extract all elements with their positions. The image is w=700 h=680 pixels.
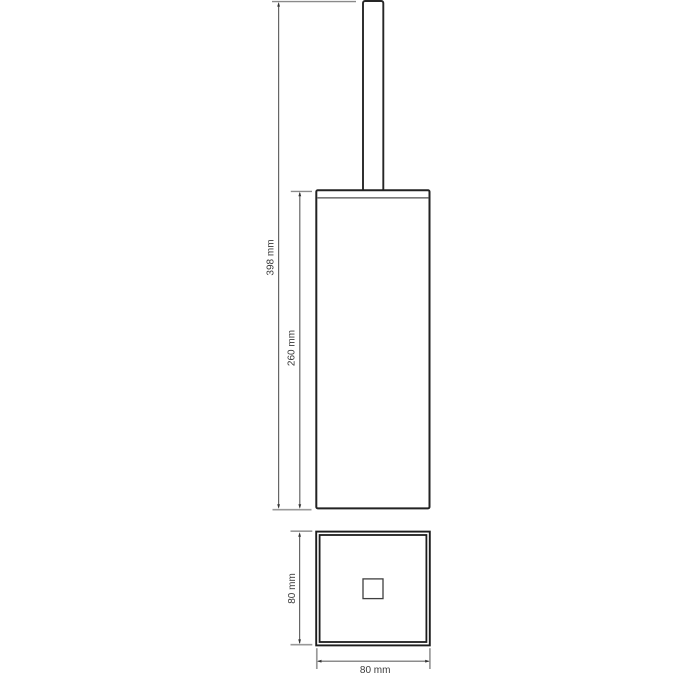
svg-text:260 mm: 260 mm — [287, 330, 298, 366]
svg-text:80 mm: 80 mm — [287, 573, 298, 604]
svg-text:398 mm: 398 mm — [266, 239, 277, 275]
svg-text:80 mm: 80 mm — [360, 665, 391, 676]
